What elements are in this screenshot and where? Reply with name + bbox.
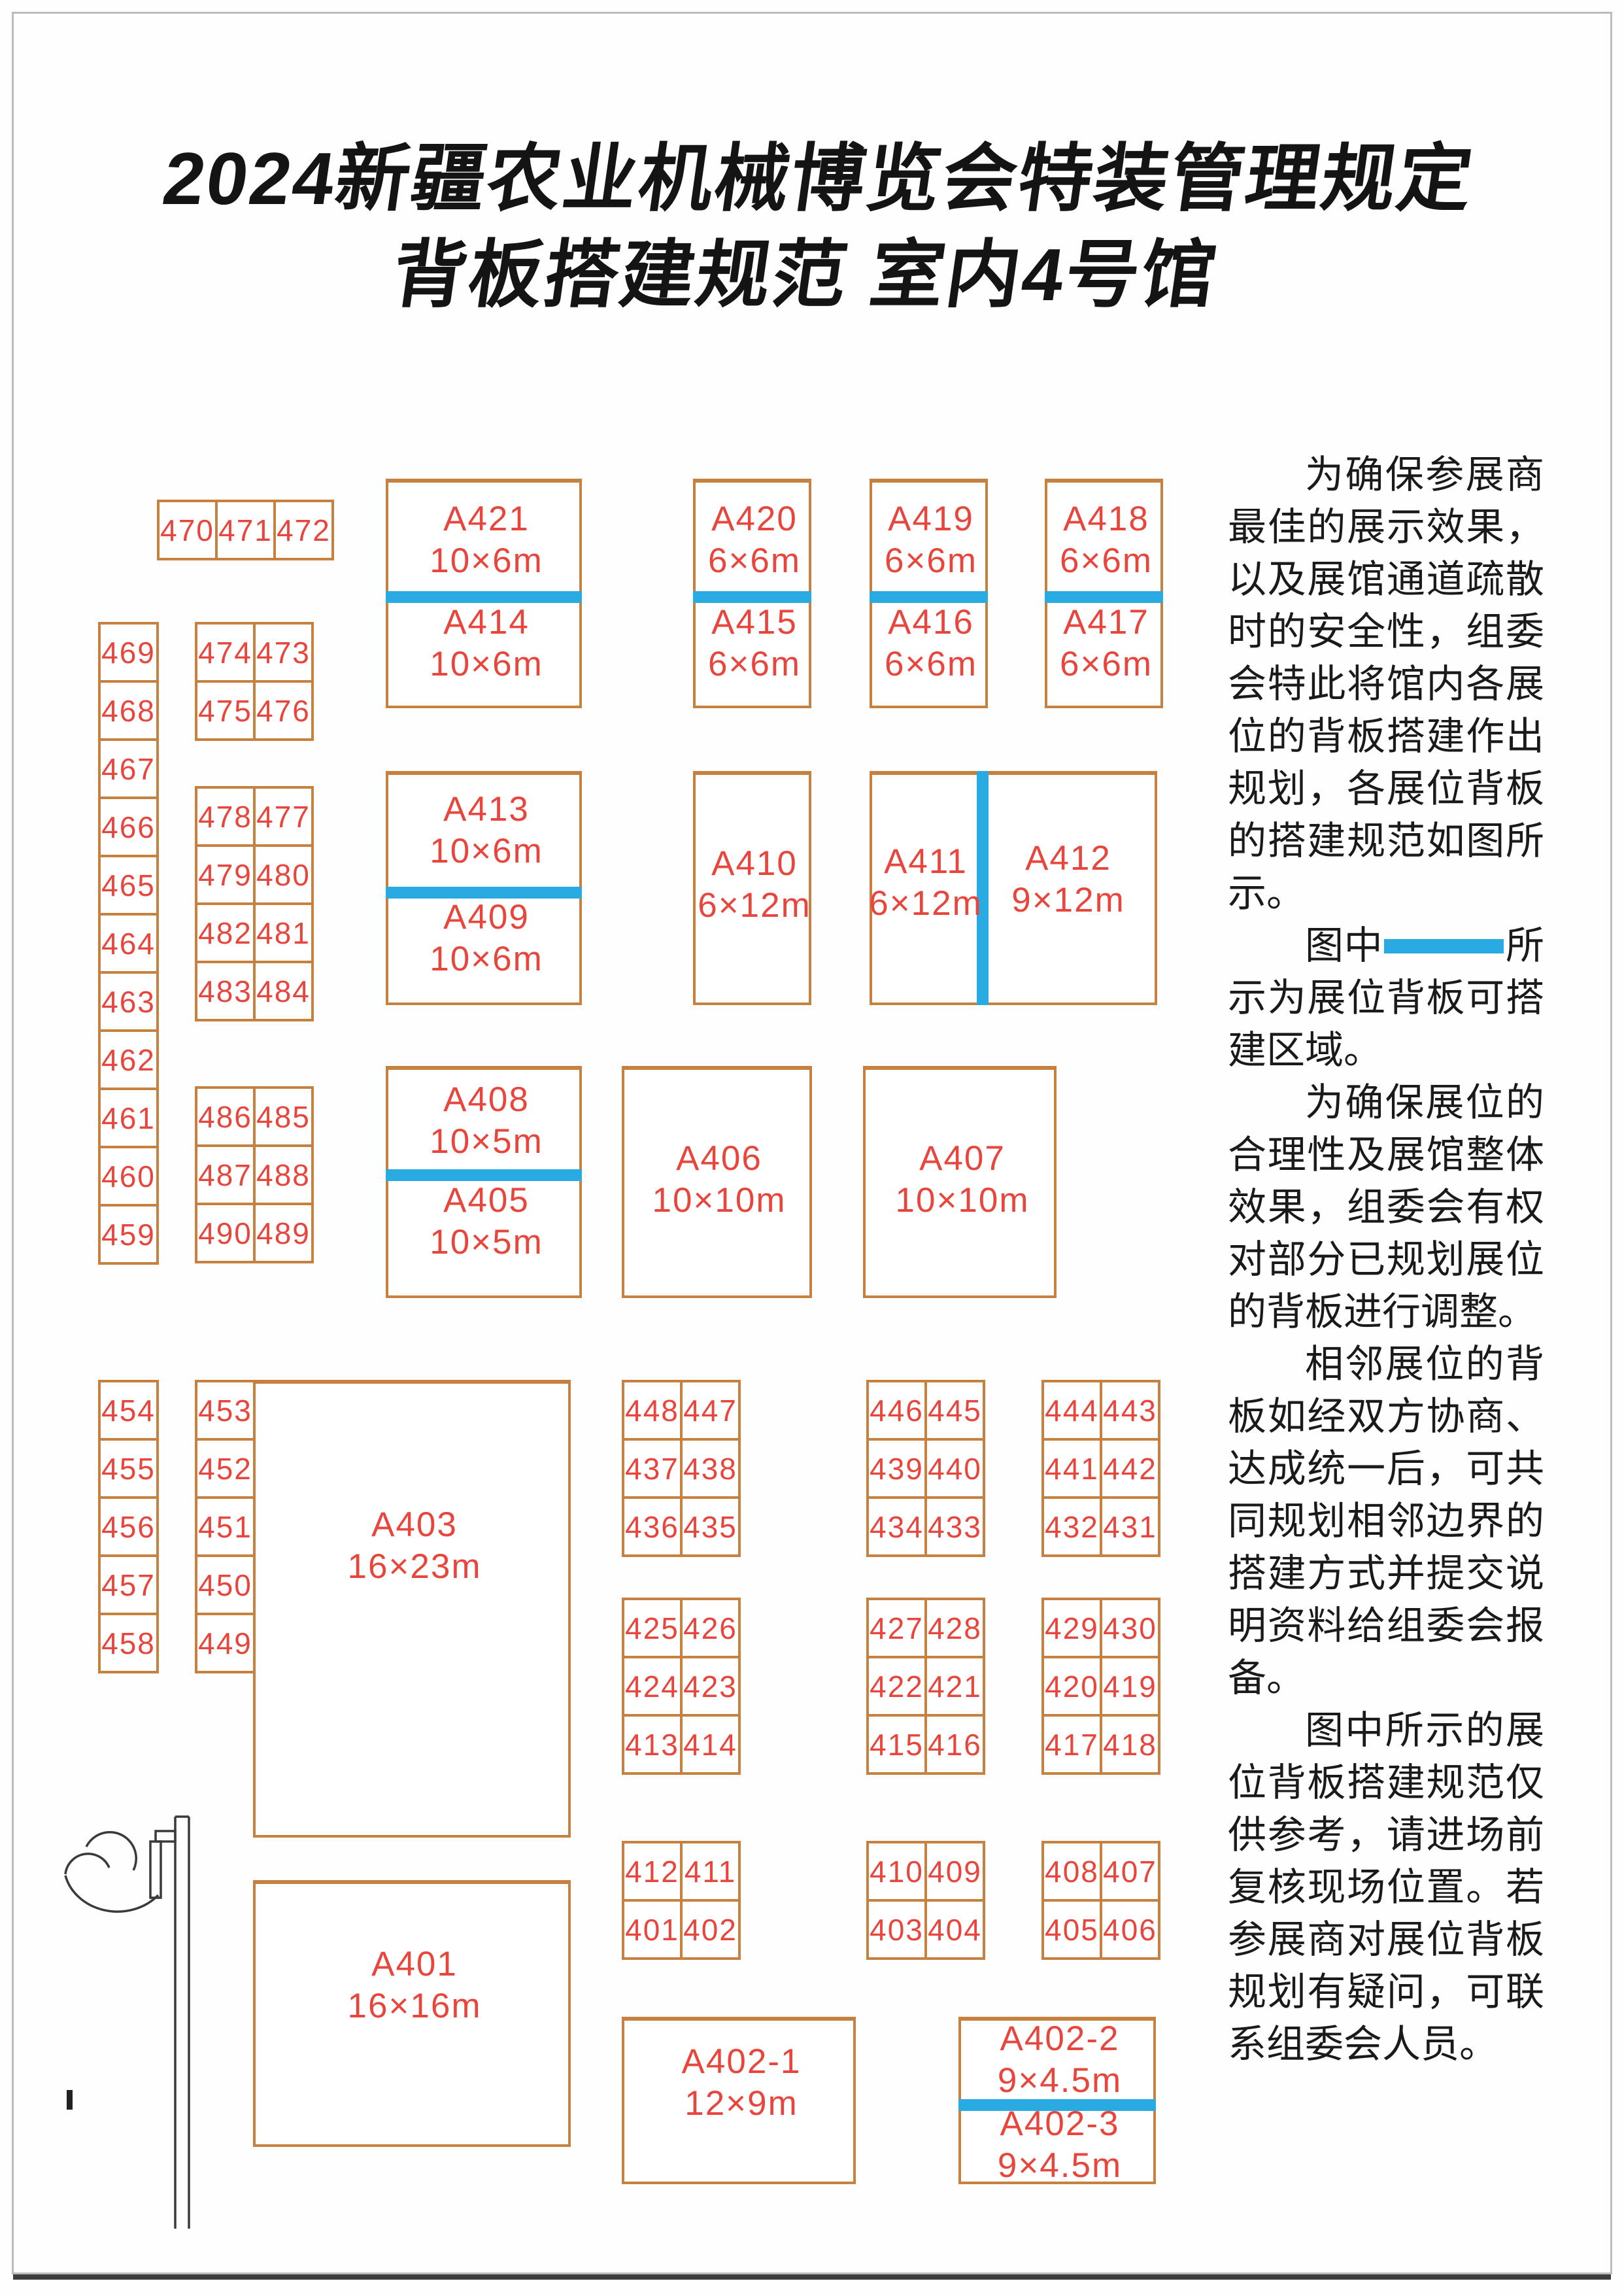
booth-402: 402 <box>681 1900 739 1959</box>
booth-481-label: 481 <box>256 916 311 951</box>
booth-group-448-435: 448447437438436435 <box>622 1380 741 1557</box>
booth-475: 475 <box>196 681 254 740</box>
booth-group-470-472: 470471472 <box>157 500 334 560</box>
booth-434-label: 434 <box>870 1509 924 1545</box>
booth-479: 479 <box>196 846 254 904</box>
booth-A409-label: A40910×6m <box>430 897 543 980</box>
booth-423: 423 <box>681 1657 739 1715</box>
booth-436-label: 436 <box>625 1509 679 1545</box>
booth-482-label: 482 <box>198 916 252 951</box>
booth-401-label: 401 <box>625 1912 679 1947</box>
booth-440-label: 440 <box>928 1451 982 1486</box>
booth-group-469-459: 469468467466465464463462461460459 <box>98 622 159 1265</box>
booth-A402-2-3: A402-29×4.5mA402-39×4.5m <box>958 2017 1156 2184</box>
booth-A401: A40116×16m <box>253 1880 571 2147</box>
booth-410-label: 410 <box>870 1854 924 1889</box>
booth-461: 461 <box>99 1089 158 1147</box>
note-paragraph-4: 相邻展位的背板如经双方协商、达成统一后，可共同规划相邻边界的搭建方式并提交说明资… <box>1228 1338 1544 1704</box>
booth-483: 483 <box>196 962 254 1020</box>
booth-441: 441 <box>1043 1439 1101 1498</box>
booth-480: 480 <box>254 846 313 904</box>
booth-478: 478 <box>196 787 254 846</box>
booth-449: 449 <box>196 1614 254 1672</box>
booth-430-label: 430 <box>1103 1611 1157 1646</box>
booth-408: 408 <box>1043 1842 1101 1900</box>
booth-472-label: 472 <box>277 513 331 548</box>
booth-422: 422 <box>868 1657 926 1715</box>
booth-470: 470 <box>158 501 216 559</box>
booth-477: 477 <box>254 787 313 846</box>
booth-458-label: 458 <box>101 1626 156 1661</box>
booth-468-label: 468 <box>101 693 156 728</box>
booth-482: 482 <box>196 904 254 962</box>
booth-430: 430 <box>1101 1599 1159 1657</box>
booth-459: 459 <box>99 1205 158 1263</box>
booth-A408-A405: A40810×5mA40510×5m <box>386 1066 582 1298</box>
booth-A420-label: A4206×6m <box>708 498 801 582</box>
booth-group-429-418: 429430420419417418 <box>1041 1598 1160 1775</box>
booth-A407-label: A40710×10m <box>895 1138 1029 1222</box>
booth-431-label: 431 <box>1103 1509 1157 1545</box>
booth-group-410-404: 410409403404 <box>866 1841 985 1960</box>
booth-406: 406 <box>1101 1900 1159 1959</box>
booth-A418-label: A4186×6m <box>1060 498 1153 582</box>
booth-439: 439 <box>868 1439 926 1498</box>
booth-460-label: 460 <box>101 1159 156 1194</box>
booth-group-427-416: 427428422421415416 <box>866 1598 985 1775</box>
booth-447-label: 447 <box>683 1393 737 1428</box>
booth-453-label: 453 <box>198 1393 252 1428</box>
booth-454: 454 <box>99 1381 158 1439</box>
booth-421: 421 <box>926 1657 984 1715</box>
booth-429: 429 <box>1043 1599 1101 1657</box>
booth-469: 469 <box>99 623 158 681</box>
notes-column: 为确保参展商最佳的展示效果，以及展馆通道疏散时的安全性，组委会特此将馆内各展位的… <box>1228 449 1544 2070</box>
booth-A421-label: A42110×6m <box>430 498 543 582</box>
booth-405: 405 <box>1043 1900 1101 1959</box>
booth-A402-1-label: A402-112×9m <box>682 2041 802 2125</box>
booth-448-label: 448 <box>625 1393 679 1428</box>
booth-463: 463 <box>99 972 158 1031</box>
booth-462: 462 <box>99 1031 158 1089</box>
booth-440: 440 <box>926 1439 984 1498</box>
booth-group-478-484: 478477479480482481483484 <box>195 786 314 1021</box>
booth-406-label: 406 <box>1103 1912 1157 1947</box>
booth-489: 489 <box>254 1204 313 1262</box>
booth-A411-A412: A4116×12mA4129×12m <box>870 771 1157 1005</box>
booth-486: 486 <box>196 1088 254 1146</box>
booth-410: 410 <box>868 1842 926 1900</box>
booth-A410-label: A4106×12m <box>698 843 811 927</box>
booth-488-label: 488 <box>256 1157 311 1193</box>
booth-415-label: 415 <box>870 1727 924 1762</box>
booth-474: 474 <box>196 623 254 681</box>
booth-467: 467 <box>99 740 158 798</box>
booth-418: 418 <box>1101 1715 1159 1773</box>
booth-group-408-406: 408407405406 <box>1041 1841 1160 1960</box>
booth-452-label: 452 <box>198 1451 252 1486</box>
booth-409-label: 409 <box>928 1854 982 1889</box>
booth-433: 433 <box>926 1498 984 1556</box>
booth-418-label: 418 <box>1103 1727 1157 1762</box>
booth-487: 487 <box>196 1146 254 1204</box>
booth-449-label: 449 <box>198 1626 252 1661</box>
booth-452: 452 <box>196 1439 254 1498</box>
booth-403: 403 <box>868 1900 926 1959</box>
booth-460: 460 <box>99 1147 158 1205</box>
booth-461-label: 461 <box>101 1101 156 1136</box>
wall-tick-mark <box>67 2090 73 2110</box>
booth-415: 415 <box>868 1715 926 1773</box>
booth-478-label: 478 <box>198 799 252 834</box>
booth-488: 488 <box>254 1146 313 1204</box>
booth-A406-label: A40610×10m <box>652 1138 786 1222</box>
booth-425: 425 <box>623 1599 681 1657</box>
booth-group-474-476: 474473475476 <box>195 622 314 741</box>
booth-457: 457 <box>99 1556 158 1614</box>
booth-A402-1: A402-112×9m <box>622 2017 856 2184</box>
booth-A419-A416: A4196×6mA4166×6m <box>870 479 988 708</box>
booth-479-label: 479 <box>198 857 252 893</box>
booth-467-label: 467 <box>101 751 156 787</box>
booth-476: 476 <box>254 681 313 740</box>
booth-A406: A40610×10m <box>622 1066 812 1298</box>
booth-465: 465 <box>99 856 158 914</box>
booth-445: 445 <box>926 1381 984 1439</box>
booth-481: 481 <box>254 904 313 962</box>
booth-426-label: 426 <box>683 1611 737 1646</box>
booth-473-label: 473 <box>256 635 311 670</box>
booth-A405-label: A40510×5m <box>430 1180 543 1263</box>
booth-404: 404 <box>926 1900 984 1959</box>
booth-424-label: 424 <box>625 1669 679 1704</box>
booth-A403: A40316×23m <box>253 1380 571 1838</box>
booth-472: 472 <box>275 501 333 559</box>
booth-487-label: 487 <box>198 1157 252 1193</box>
entrance-door-icon <box>60 1810 199 2235</box>
booth-404-label: 404 <box>928 1912 982 1947</box>
booth-489-label: 489 <box>256 1216 311 1251</box>
booth-426: 426 <box>681 1599 739 1657</box>
booth-419: 419 <box>1101 1657 1159 1715</box>
booth-439-label: 439 <box>870 1451 924 1486</box>
booth-447: 447 <box>681 1381 739 1439</box>
booth-458: 458 <box>99 1614 158 1672</box>
booth-490: 490 <box>196 1204 254 1262</box>
booth-A415-label: A4156×6m <box>708 602 801 685</box>
booth-463-label: 463 <box>101 984 156 1019</box>
booth-419-label: 419 <box>1103 1669 1157 1704</box>
booth-444: 444 <box>1043 1381 1101 1439</box>
booth-437: 437 <box>623 1439 681 1498</box>
booth-485-label: 485 <box>256 1099 311 1135</box>
note-paragraph-3: 为确保展位的合理性及展馆整体效果，组委会有权对部分已规划展位的背板进行调整。 <box>1228 1076 1544 1338</box>
booth-423-label: 423 <box>683 1669 737 1704</box>
booth-A402-3-label: A402-39×4.5m <box>998 2103 1122 2187</box>
booth-A410: A4106×12m <box>693 771 811 1005</box>
booth-412-label: 412 <box>625 1854 679 1889</box>
booth-451-label: 451 <box>198 1509 252 1545</box>
booth-416-label: 416 <box>928 1727 982 1762</box>
booth-428: 428 <box>926 1599 984 1657</box>
booth-420-label: 420 <box>1045 1669 1099 1704</box>
booth-471-label: 471 <box>218 513 273 548</box>
booth-411: 411 <box>681 1842 739 1900</box>
booth-443-label: 443 <box>1103 1393 1157 1428</box>
booth-427: 427 <box>868 1599 926 1657</box>
booth-465-label: 465 <box>101 868 156 903</box>
booth-407: 407 <box>1101 1842 1159 1900</box>
booth-486-label: 486 <box>198 1099 252 1135</box>
booth-438: 438 <box>681 1439 739 1498</box>
booth-480-label: 480 <box>256 857 311 893</box>
booth-451: 451 <box>196 1498 254 1556</box>
booth-456: 456 <box>99 1498 158 1556</box>
booth-425-label: 425 <box>625 1611 679 1646</box>
booth-448: 448 <box>623 1381 681 1439</box>
booth-444-label: 444 <box>1045 1393 1099 1428</box>
booth-490-label: 490 <box>198 1216 252 1251</box>
booth-445-label: 445 <box>928 1393 982 1428</box>
booth-441-label: 441 <box>1045 1451 1099 1486</box>
page: 2024新疆农业机械博览会特装管理规定 背板搭建规范 室内4号馆 4704714… <box>0 0 1624 2296</box>
booth-A401-label: A40116×16m <box>347 1944 481 2027</box>
booth-A420-A415: A4206×6mA4156×6m <box>693 479 811 708</box>
booth-462-label: 462 <box>101 1042 156 1078</box>
booth-435: 435 <box>681 1498 739 1556</box>
booth-470-label: 470 <box>160 513 214 548</box>
booth-A402-2-label: A402-29×4.5m <box>998 2018 1122 2102</box>
booth-424: 424 <box>623 1657 681 1715</box>
booth-446: 446 <box>868 1381 926 1439</box>
booth-A407: A40710×10m <box>863 1066 1057 1298</box>
booth-A414-label: A41410×6m <box>430 602 543 685</box>
booth-411-label: 411 <box>685 1854 736 1889</box>
legend-text-before: 图中 <box>1305 924 1383 967</box>
bottom-wall-line <box>13 2274 1611 2280</box>
booth-group-412-402: 412411401402 <box>622 1841 741 1960</box>
legend-blue-bar <box>1384 939 1504 953</box>
booth-484-label: 484 <box>256 974 311 1009</box>
booth-403-label: 403 <box>870 1912 924 1947</box>
booth-450-label: 450 <box>198 1568 252 1603</box>
booth-413: 413 <box>623 1715 681 1773</box>
booth-473: 473 <box>254 623 313 681</box>
booth-414-label: 414 <box>683 1727 737 1762</box>
booth-412: 412 <box>623 1842 681 1900</box>
booth-437-label: 437 <box>625 1451 679 1486</box>
booth-471: 471 <box>216 501 275 559</box>
booth-420: 420 <box>1043 1657 1101 1715</box>
booth-group-446-433: 446445439440434433 <box>866 1380 985 1557</box>
booth-484: 484 <box>254 962 313 1020</box>
booth-427-label: 427 <box>870 1611 924 1646</box>
booth-408-label: 408 <box>1045 1854 1099 1889</box>
booth-421-label: 421 <box>928 1669 982 1704</box>
floor-plan: 4704714724694684674664654644634624614604… <box>0 0 1190 2296</box>
booth-A416-label: A4166×6m <box>885 602 977 685</box>
booth-group-454-458: 454455456457458 <box>98 1380 159 1673</box>
booth-429-label: 429 <box>1045 1611 1099 1646</box>
booth-453: 453 <box>196 1381 254 1439</box>
booth-434: 434 <box>868 1498 926 1556</box>
booth-456-label: 456 <box>101 1509 156 1545</box>
booth-455-label: 455 <box>101 1451 156 1486</box>
booth-A408-label: A40810×5m <box>430 1079 543 1163</box>
booth-A411-label: A4116×12m <box>869 841 983 925</box>
booth-436: 436 <box>623 1498 681 1556</box>
booth-446-label: 446 <box>870 1393 924 1428</box>
booth-459-label: 459 <box>101 1217 156 1252</box>
booth-483-label: 483 <box>198 974 252 1009</box>
booth-464-label: 464 <box>101 926 156 961</box>
booth-401: 401 <box>623 1900 681 1959</box>
booth-475-label: 475 <box>198 693 252 728</box>
booth-442-label: 442 <box>1103 1451 1157 1486</box>
booth-485: 485 <box>254 1088 313 1146</box>
booth-455: 455 <box>99 1439 158 1498</box>
note-paragraph-2: 图中所示为展位背板可搭建区域。 <box>1228 919 1544 1076</box>
booth-A419-label: A4196×6m <box>885 498 977 582</box>
booth-405-label: 405 <box>1045 1912 1099 1947</box>
booth-A421-A414: A42110×6mA41410×6m <box>386 479 582 708</box>
booth-428-label: 428 <box>928 1611 982 1646</box>
booth-457-label: 457 <box>101 1568 156 1603</box>
booth-407-label: 407 <box>1103 1854 1157 1889</box>
booth-417-label: 417 <box>1045 1727 1099 1762</box>
booth-477-label: 477 <box>256 799 311 834</box>
booth-443: 443 <box>1101 1381 1159 1439</box>
booth-466-label: 466 <box>101 810 156 845</box>
booth-417: 417 <box>1043 1715 1101 1773</box>
booth-438-label: 438 <box>683 1451 737 1486</box>
booth-409: 409 <box>926 1842 984 1900</box>
booth-464: 464 <box>99 914 158 972</box>
booth-402-label: 402 <box>683 1912 737 1947</box>
booth-group-425-414: 425426424423413414 <box>622 1598 741 1775</box>
booth-414: 414 <box>681 1715 739 1773</box>
booth-A403-label: A40316×23m <box>347 1504 481 1588</box>
booth-442: 442 <box>1101 1439 1159 1498</box>
booth-466: 466 <box>99 798 158 856</box>
booth-432-label: 432 <box>1045 1509 1099 1545</box>
booth-A417-label: A4176×6m <box>1060 602 1153 685</box>
booth-468: 468 <box>99 681 158 740</box>
booth-474-label: 474 <box>198 635 252 670</box>
booth-A412-label: A4129×12m <box>1011 838 1125 921</box>
booth-433-label: 433 <box>928 1509 982 1545</box>
note-paragraph-5: 图中所示的展位背板搭建规范仅供参考，请进场前复核现场位置。若参展商对展位背板规划… <box>1228 1704 1544 2070</box>
note-paragraph-1: 为确保参展商最佳的展示效果，以及展馆通道疏散时的安全性，组委会特此将馆内各展位的… <box>1228 449 1544 919</box>
booth-432: 432 <box>1043 1498 1101 1556</box>
booth-431: 431 <box>1101 1498 1159 1556</box>
booth-413-label: 413 <box>625 1727 679 1762</box>
booth-A413-A409: A41310×6mA40910×6m <box>386 771 582 1005</box>
booth-group-444-431: 444443441442432431 <box>1041 1380 1160 1557</box>
booth-450: 450 <box>196 1556 254 1614</box>
booth-A418-A417: A4186×6mA4176×6m <box>1045 479 1163 708</box>
booth-group-453-449: 453452451450449 <box>195 1380 256 1673</box>
booth-group-486-489: 486485487488490489 <box>195 1086 314 1263</box>
booth-469-label: 469 <box>101 635 156 670</box>
booth-476-label: 476 <box>256 693 311 728</box>
booth-416: 416 <box>926 1715 984 1773</box>
booth-A413-label: A41310×6m <box>430 789 543 872</box>
booth-435-label: 435 <box>683 1509 737 1545</box>
booth-422-label: 422 <box>870 1669 924 1704</box>
booth-454-label: 454 <box>101 1393 156 1428</box>
